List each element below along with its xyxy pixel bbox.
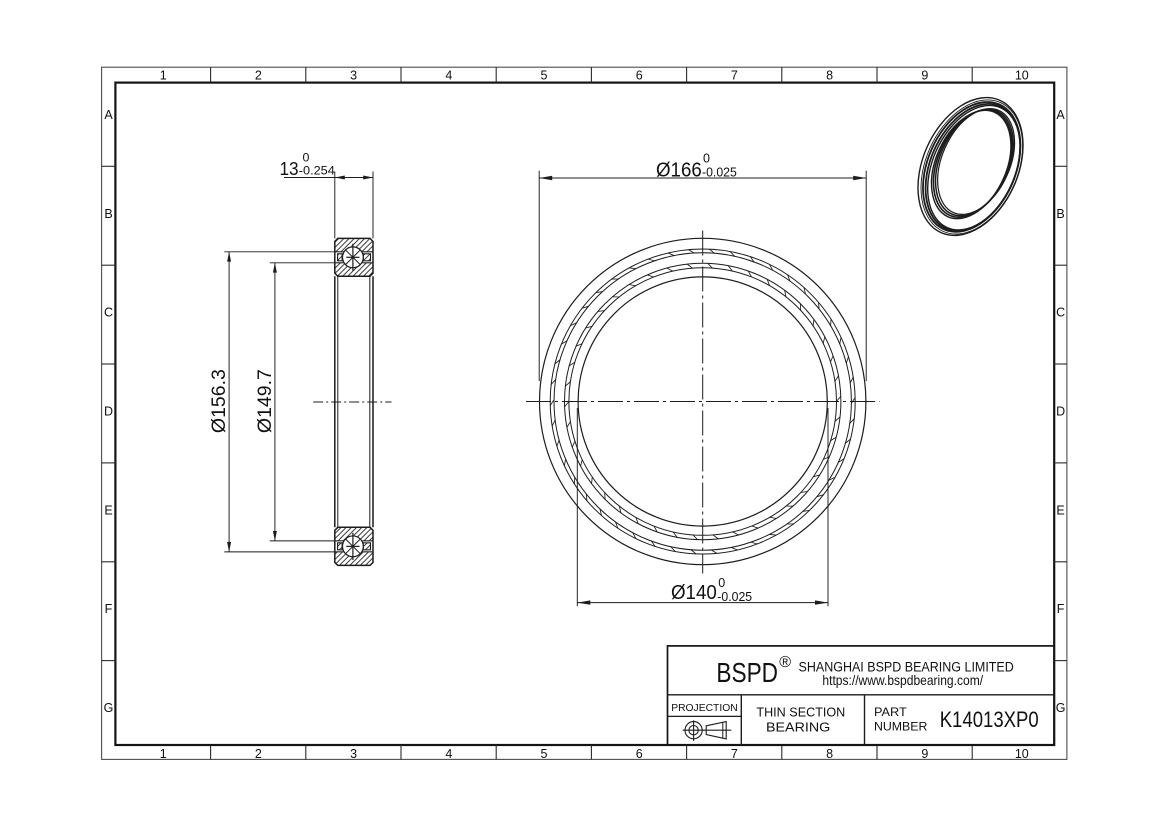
svg-text:BEARING: BEARING [766, 720, 830, 735]
svg-text:F: F [1057, 602, 1065, 616]
svg-text:2: 2 [255, 747, 262, 761]
svg-text:Ø149.7: Ø149.7 [255, 369, 276, 433]
svg-text:8: 8 [826, 747, 833, 761]
svg-text:E: E [104, 503, 112, 517]
svg-text:A: A [1056, 108, 1065, 122]
svg-text:F: F [105, 602, 113, 616]
svg-text:5: 5 [541, 747, 548, 761]
svg-text:Ø156.3: Ø156.3 [209, 369, 230, 433]
svg-text:-0.025: -0.025 [717, 590, 752, 604]
svg-text:3: 3 [350, 747, 357, 761]
svg-text:7: 7 [731, 69, 738, 83]
svg-text:A: A [104, 108, 113, 122]
svg-text:2: 2 [255, 69, 262, 83]
svg-text:Ø140: Ø140 [671, 581, 717, 604]
svg-text:NUMBER: NUMBER [874, 719, 928, 733]
svg-text:G: G [1056, 701, 1066, 715]
svg-text:B: B [104, 207, 112, 221]
svg-text:K14013XP0: K14013XP0 [940, 707, 1039, 732]
svg-text:-0.025: -0.025 [702, 165, 737, 179]
svg-text:4: 4 [445, 747, 452, 761]
svg-text:PART: PART [874, 705, 907, 719]
svg-text:1: 1 [160, 69, 167, 83]
svg-text:6: 6 [636, 69, 643, 83]
svg-text:B: B [1056, 207, 1064, 221]
svg-text:10: 10 [1015, 69, 1029, 83]
svg-text:D: D [104, 405, 113, 419]
svg-text:BSPD: BSPD [716, 657, 778, 688]
svg-text:5: 5 [541, 69, 548, 83]
svg-text:3: 3 [350, 69, 357, 83]
svg-text:0: 0 [718, 576, 725, 590]
svg-text:9: 9 [921, 747, 928, 761]
svg-text:C: C [1056, 306, 1065, 320]
svg-text:Ø166: Ø166 [656, 158, 702, 181]
svg-text:4: 4 [445, 69, 452, 83]
svg-text:0: 0 [303, 151, 310, 165]
svg-text:7: 7 [731, 747, 738, 761]
svg-text:®: ® [779, 654, 791, 671]
svg-text:C: C [104, 306, 113, 320]
svg-text:13: 13 [280, 158, 299, 179]
svg-text:10: 10 [1015, 747, 1029, 761]
svg-text:PROJECTION: PROJECTION [671, 703, 738, 714]
svg-text:9: 9 [921, 69, 928, 83]
svg-text:D: D [1056, 405, 1065, 419]
svg-text:8: 8 [826, 69, 833, 83]
svg-text:https://www.bspdbearing.com/: https://www.bspdbearing.com/ [822, 672, 983, 688]
svg-text:6: 6 [636, 747, 643, 761]
svg-text:0: 0 [703, 151, 710, 165]
svg-text:E: E [1056, 503, 1064, 517]
svg-text:-0.254: -0.254 [299, 164, 335, 178]
svg-text:G: G [104, 701, 114, 715]
svg-text:THIN SECTION: THIN SECTION [756, 705, 845, 720]
svg-text:1: 1 [160, 747, 167, 761]
